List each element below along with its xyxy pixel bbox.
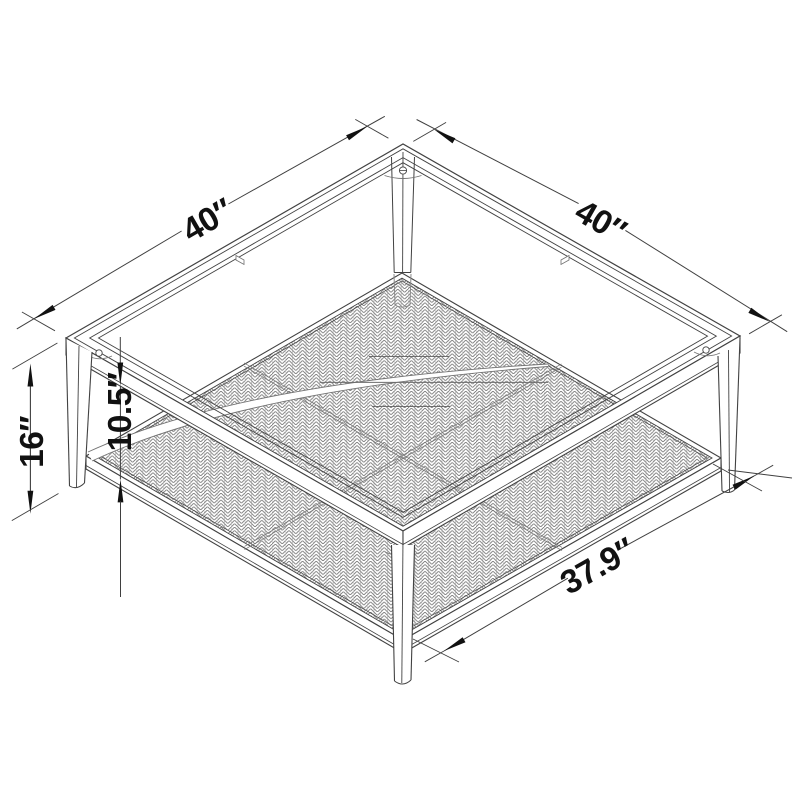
svg-text:10.5″: 10.5″ <box>102 372 139 451</box>
svg-text:16″: 16″ <box>14 416 51 468</box>
